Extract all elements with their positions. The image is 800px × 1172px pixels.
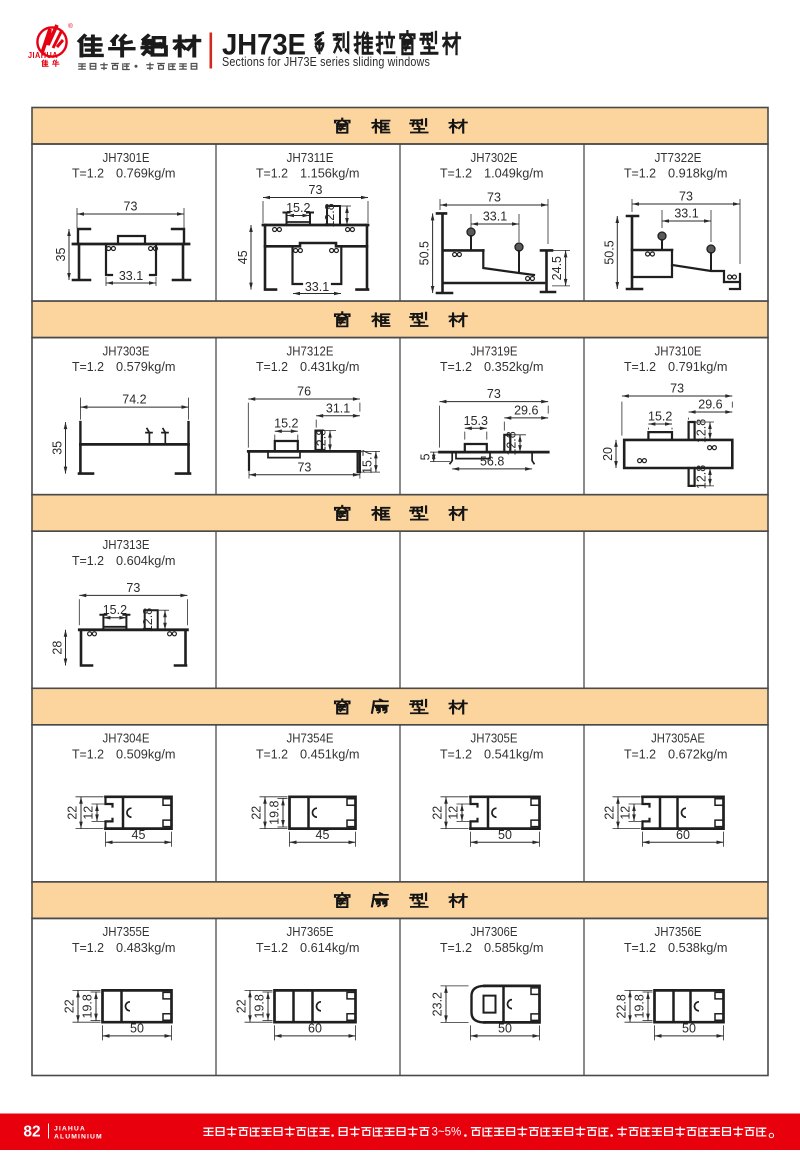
svg-text:Sections for JH73E series slid: Sections for JH73E series sliding window…: [222, 54, 430, 69]
svg-text:0.918kg/m: 0.918kg/m: [668, 166, 728, 181]
svg-text:73: 73: [670, 382, 684, 396]
svg-text:22: 22: [603, 806, 617, 820]
svg-text:73: 73: [297, 460, 311, 474]
svg-text:JH7319E: JH7319E: [471, 343, 518, 358]
svg-text:5: 5: [419, 453, 433, 460]
svg-text:T=1.2: T=1.2: [624, 940, 656, 955]
svg-text:12.8: 12.8: [695, 465, 709, 489]
svg-text:73: 73: [309, 183, 323, 197]
svg-text:28: 28: [51, 641, 65, 655]
svg-text:0.541kg/m: 0.541kg/m: [484, 746, 544, 761]
svg-text:0.614kg/m: 0.614kg/m: [300, 940, 360, 955]
svg-text:22.8: 22.8: [615, 994, 629, 1018]
svg-text:JH7311E: JH7311E: [287, 150, 334, 165]
svg-text:JH7310E: JH7310E: [655, 343, 702, 358]
svg-text:T=1.2: T=1.2: [440, 359, 472, 374]
svg-text:29.6: 29.6: [514, 403, 538, 417]
svg-text:19.8: 19.8: [81, 994, 95, 1018]
svg-text:82: 82: [23, 1124, 40, 1141]
svg-text:T=1.2: T=1.2: [624, 359, 656, 374]
svg-text:15.2: 15.2: [274, 417, 298, 431]
svg-text:22: 22: [235, 999, 249, 1013]
svg-text:56.8: 56.8: [480, 454, 504, 468]
svg-text:ALUMINIUM: ALUMINIUM: [54, 1134, 103, 1141]
svg-text:0.604kg/m: 0.604kg/m: [116, 553, 176, 568]
svg-text:19.8: 19.8: [253, 994, 267, 1018]
svg-text:T=1.2: T=1.2: [256, 359, 288, 374]
svg-text:24.5: 24.5: [550, 256, 564, 280]
svg-text:T=1.2: T=1.2: [256, 940, 288, 955]
svg-text:T=1.2: T=1.2: [440, 940, 472, 955]
svg-text:73: 73: [487, 191, 501, 205]
svg-text:15.3: 15.3: [464, 414, 488, 428]
svg-text:73: 73: [124, 200, 138, 214]
svg-text:T=1.2: T=1.2: [72, 940, 104, 955]
svg-text:T=1.2: T=1.2: [72, 359, 104, 374]
svg-text:T=1.2: T=1.2: [72, 166, 104, 181]
svg-text:12: 12: [82, 806, 96, 820]
svg-text:0.672kg/m: 0.672kg/m: [668, 746, 728, 761]
svg-text:JH7355E: JH7355E: [103, 924, 150, 939]
svg-text:0.451kg/m: 0.451kg/m: [300, 746, 360, 761]
svg-text:22: 22: [66, 806, 80, 820]
svg-text:JH7305E: JH7305E: [471, 731, 518, 746]
svg-text:T=1.2: T=1.2: [72, 553, 104, 568]
svg-text:T=1.2: T=1.2: [256, 746, 288, 761]
svg-text:35: 35: [51, 441, 65, 455]
svg-text:JH7302E: JH7302E: [471, 150, 518, 165]
svg-text:33.1: 33.1: [674, 207, 698, 221]
svg-text:JH7365E: JH7365E: [287, 924, 334, 939]
svg-text:JH7303E: JH7303E: [103, 343, 150, 358]
svg-text:1.049kg/m: 1.049kg/m: [484, 166, 544, 181]
svg-text:0.538kg/m: 0.538kg/m: [668, 940, 728, 955]
svg-text:T=1.2: T=1.2: [72, 746, 104, 761]
svg-text:22: 22: [63, 999, 77, 1013]
svg-text:0.509kg/m: 0.509kg/m: [116, 746, 176, 761]
svg-text:73: 73: [487, 387, 501, 401]
svg-text:JIAHUA: JIAHUA: [54, 1126, 86, 1133]
svg-text:JH7306E: JH7306E: [471, 924, 518, 939]
svg-text:JH7313E: JH7313E: [103, 537, 150, 552]
svg-text:JH7301E: JH7301E: [103, 150, 150, 165]
svg-text:12: 12: [619, 806, 633, 820]
svg-text:JH7354E: JH7354E: [287, 731, 334, 746]
svg-text:20: 20: [601, 447, 615, 461]
svg-text:0.352kg/m: 0.352kg/m: [484, 359, 544, 374]
svg-text:29.6: 29.6: [698, 398, 722, 412]
svg-text:33.1: 33.1: [119, 269, 143, 283]
svg-text:0.483kg/m: 0.483kg/m: [116, 940, 176, 955]
svg-text:0.585kg/m: 0.585kg/m: [484, 940, 544, 955]
svg-text:JIAHUA: JIAHUA: [28, 51, 58, 60]
svg-text:23.2: 23.2: [431, 992, 445, 1016]
svg-text:T=1.2: T=1.2: [256, 166, 288, 181]
svg-text:19.8: 19.8: [268, 800, 282, 824]
svg-text:45: 45: [236, 250, 250, 264]
svg-text:JH7305AE: JH7305AE: [651, 731, 705, 746]
svg-text:15.2: 15.2: [648, 410, 672, 424]
svg-text:T=1.2: T=1.2: [440, 166, 472, 181]
svg-text:0.769kg/m: 0.769kg/m: [116, 166, 176, 181]
svg-text:74.2: 74.2: [122, 393, 146, 407]
svg-text:19.8: 19.8: [633, 994, 647, 1018]
svg-text:50.5: 50.5: [418, 241, 432, 265]
svg-text:12: 12: [447, 806, 461, 820]
svg-text:22: 22: [431, 806, 445, 820]
svg-text:31.1: 31.1: [326, 401, 350, 415]
svg-text:T=1.2: T=1.2: [624, 746, 656, 761]
svg-text:76: 76: [297, 385, 311, 399]
svg-text:1.156kg/m: 1.156kg/m: [300, 166, 360, 181]
svg-text:T=1.2: T=1.2: [624, 166, 656, 181]
svg-text:0.791kg/m: 0.791kg/m: [668, 359, 728, 374]
svg-text:JH7304E: JH7304E: [103, 731, 150, 746]
svg-text:3~5%: 3~5%: [432, 1127, 462, 1139]
svg-text:®: ®: [68, 22, 73, 30]
svg-text:22: 22: [250, 806, 264, 820]
svg-text:JH7356E: JH7356E: [655, 924, 702, 939]
svg-text:JT7322E: JT7322E: [655, 150, 702, 165]
svg-text:15.7: 15.7: [360, 450, 374, 474]
svg-text:35: 35: [54, 248, 68, 262]
svg-text:73: 73: [679, 190, 693, 204]
svg-text:JH7312E: JH7312E: [287, 343, 334, 358]
svg-text:50.5: 50.5: [602, 240, 616, 264]
svg-text:T=1.2: T=1.2: [440, 746, 472, 761]
svg-text:0.579kg/m: 0.579kg/m: [116, 359, 176, 374]
svg-text:33.1: 33.1: [483, 210, 507, 224]
svg-text:73: 73: [126, 581, 140, 595]
svg-text:33.1: 33.1: [305, 280, 329, 294]
svg-text:0.431kg/m: 0.431kg/m: [300, 359, 360, 374]
